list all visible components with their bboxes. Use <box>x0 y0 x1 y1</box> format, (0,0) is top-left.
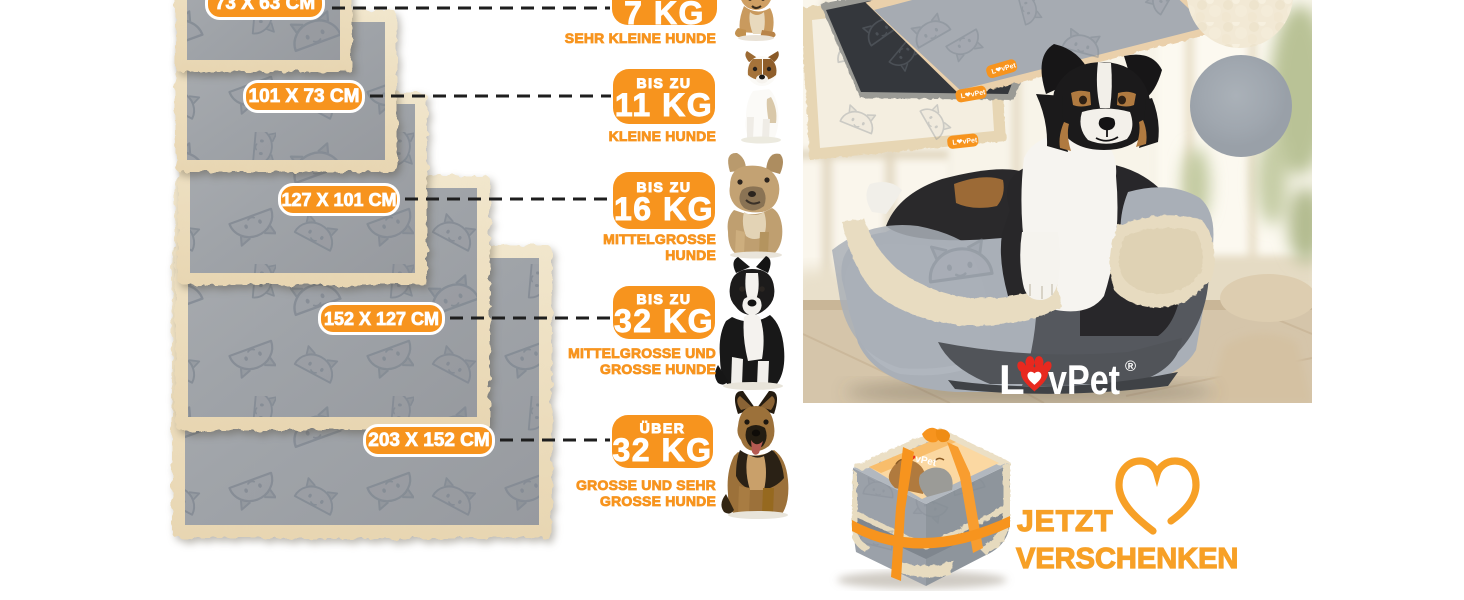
svg-text:vPet: vPet <box>1048 356 1120 403</box>
svg-text:®: ® <box>1125 358 1136 375</box>
